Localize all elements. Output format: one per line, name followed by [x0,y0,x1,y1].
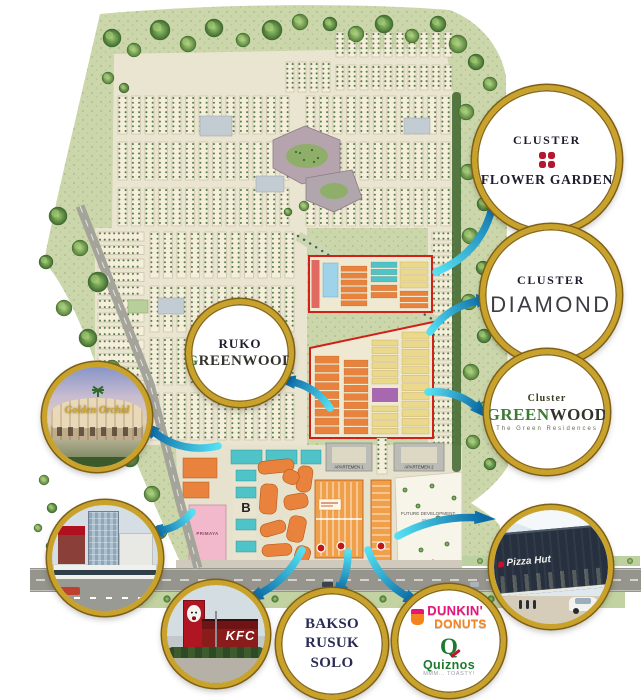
pizza-hut-building-photo: Pizza Hut [494,510,608,624]
callout-cluster-greenwood: Cluster GREENWOOD The Green Residences [484,349,610,475]
ruko-name: GREENWOOD [187,353,294,370]
cluster-name: GREENWOOD [487,405,608,425]
quiznos-wordmark: Quiznos [423,659,475,672]
callout-dunkin-quiznos: DUNKIN' DONUTS Q Quiznos MMM... TOASTY! [392,584,506,698]
donuts-wordmark: DONUTS [427,618,486,630]
callout-mall-photo [47,500,163,616]
dunkin-wordmark: DUNKIN' [427,604,486,617]
people [519,600,536,609]
kfc-building-photo: KFC [167,585,265,683]
callout-pizza-hut-photo: Pizza Hut [489,505,613,629]
cluster-subtitle: The Green Residences [496,426,598,432]
flower-garden-logo-icon [539,152,555,168]
callout-kfc-photo: KFC [162,580,270,688]
bakso-line1: BAKSO RUSUK [281,615,383,654]
apartemen-2-label: APARTEMEN 2 [404,465,434,470]
mall-building-photo [52,505,158,611]
coffee-cup-icon [411,609,424,625]
colonel-logo-icon [187,605,201,622]
callout-cluster-diamond: CLUSTER DIAMOND [480,224,622,366]
golden-orchid-building-photo: Golden Orchid [47,367,147,467]
callout-ruko-greenwood: RUKO GREENWOOD [186,299,294,407]
block-b-label: B [241,500,250,515]
future-development-label: FUTURE DEVELOPMENT [401,511,456,516]
palm-icon [97,389,99,397]
car [569,597,599,612]
kfc-sign: KFC [226,628,256,643]
pizza-hut-roof-icon [499,561,506,568]
quiznos-q-logo-icon: Q [440,635,458,658]
cluster-word: CLUSTER [517,273,585,288]
site-plan-poster: APARTEMEN 1APARTEMEN 2PRIMAYABFUTURE DEV… [0,0,641,700]
apartemen-1-label: APARTEMEN 1 [334,465,364,470]
ruko-word: RUKO [219,336,262,352]
callout-golden-orchid-photo: Golden Orchid [42,362,152,472]
quiznos-tagline: MMM... TOASTY! [423,672,475,678]
cluster-name: DIAMOND [490,292,611,318]
callout-bakso-rusuk-solo: BAKSO RUSUK SOLO [276,588,388,700]
primaya-label: PRIMAYA [196,531,219,536]
pizza-hut-sign: Pizza Hut [498,555,551,571]
apartment-blocks: APARTEMEN 1APARTEMEN 2 [326,438,444,474]
callout-cluster-flower-garden: CLUSTER FLOWER GARDEN [472,85,622,235]
golden-orchid-sign: Golden Orchid [47,405,147,416]
cluster-word: CLUSTER [513,133,581,148]
bakso-line2: SOLO [311,654,354,674]
cluster-name: FLOWER GARDEN [481,172,613,188]
cluster-word: Cluster [528,393,567,404]
